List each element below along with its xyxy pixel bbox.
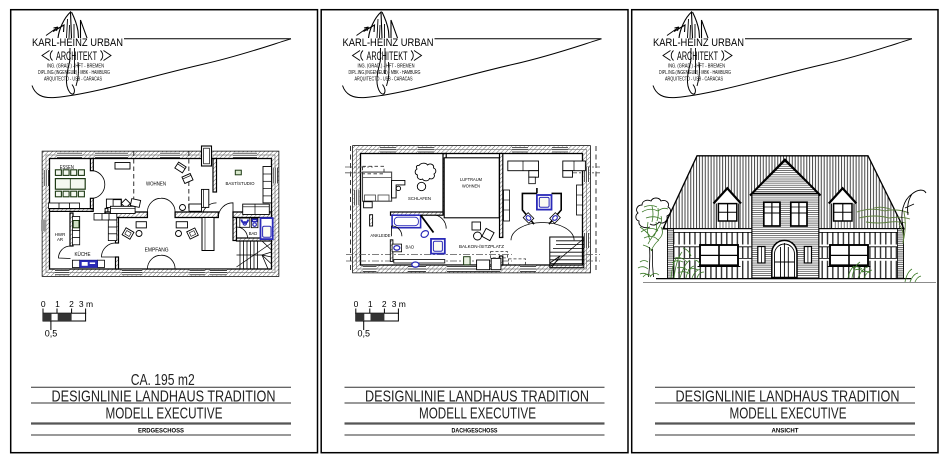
svg-text:KARL-HEINZ URBAN: KARL-HEINZ URBAN [32,37,123,49]
svg-text:BAD: BAD [405,245,414,250]
svg-text:m: m [399,299,406,309]
svg-text:ARCHITEKT: ARCHITEKT [367,50,408,63]
svg-text:ANSICHT: ANSICHT [772,427,799,434]
svg-text:3: 3 [79,299,84,309]
svg-text:DIPL.ING.(INGENIEUR) - MBK - H: DIPL.ING.(INGENIEUR) - MBK - HAMBURG [349,70,421,76]
svg-text:KARL-HEINZ URBAN: KARL-HEINZ URBAN [653,37,744,49]
svg-text:LUFTRAUM: LUFTRAUM [460,177,482,182]
svg-text:WOHNEN: WOHNEN [146,182,166,188]
svg-text:0,5: 0,5 [45,329,58,339]
svg-text:0: 0 [41,299,46,309]
svg-text:ING. (GRAD.) - HFT - BREMEN: ING. (GRAD.) - HFT - BREMEN [47,63,104,69]
svg-text:EMPFANG: EMPFANG [145,248,169,254]
svg-text:ING. (GRAD.) - HFT - BREMEN: ING. (GRAD.) - HFT - BREMEN [358,63,415,69]
svg-text:ANKLEIDE: ANKLEIDE [370,233,390,238]
svg-text:ARQUITECTO - USB - CARACAS: ARQUITECTO - USB - CARACAS [44,76,103,82]
svg-text:m: m [86,299,93,309]
svg-text:BAD: BAD [249,231,258,236]
svg-text:DIPL.ING.(INGENIEUR) - MBK - H: DIPL.ING.(INGENIEUR) - MBK - HAMBURG [659,70,731,76]
svg-text:MODELL EXECUTIVE: MODELL EXECUTIVE [730,406,847,423]
svg-text:WOHNEN: WOHNEN [462,184,480,189]
svg-text:ING. (GRAD.) - HFT - BREMEN: ING. (GRAD.) - HFT - BREMEN [668,63,725,69]
svg-text:1: 1 [55,299,60,309]
svg-text:BAST/STUDIO: BAST/STUDIO [226,181,255,186]
svg-text:KÜCHE: KÜCHE [75,251,92,258]
svg-text:DACHGESCHOSS: DACHGESCHOSS [452,427,498,434]
svg-text:1: 1 [368,299,373,309]
svg-text:AR: AR [57,237,63,242]
svg-text:2: 2 [69,299,74,309]
svg-text:0,5: 0,5 [358,329,371,339]
svg-text:MODELL EXECUTIVE: MODELL EXECUTIVE [419,406,536,423]
svg-text:CA. 195 m2: CA. 195 m2 [131,372,195,389]
svg-text:ERDGESCHOSS: ERDGESCHOSS [138,427,185,434]
svg-text:KARL-HEINZ URBAN: KARL-HEINZ URBAN [343,37,434,49]
svg-text:3: 3 [392,299,397,309]
svg-text:ARQUITECTO - USB - CARACAS: ARQUITECTO - USB - CARACAS [355,76,414,82]
svg-text:ARQUITECTO - USB - CARACAS: ARQUITECTO - USB - CARACAS [665,76,724,82]
svg-text:MODELL EXECUTIVE: MODELL EXECUTIVE [106,406,223,423]
svg-text:2: 2 [382,299,387,309]
svg-text:SCHLAFEN: SCHLAFEN [408,196,431,201]
svg-text:0: 0 [354,299,359,309]
svg-text:DIPL.ING.(INGENIEUR) - MBK - H: DIPL.ING.(INGENIEUR) - MBK - HAMBURG [38,70,110,76]
svg-text:BALKON-/SITZPLATZ: BALKON-/SITZPLATZ [459,244,504,249]
svg-text:ARCHITEKT: ARCHITEKT [56,50,97,63]
svg-text:ARCHITEKT: ARCHITEKT [677,50,718,63]
